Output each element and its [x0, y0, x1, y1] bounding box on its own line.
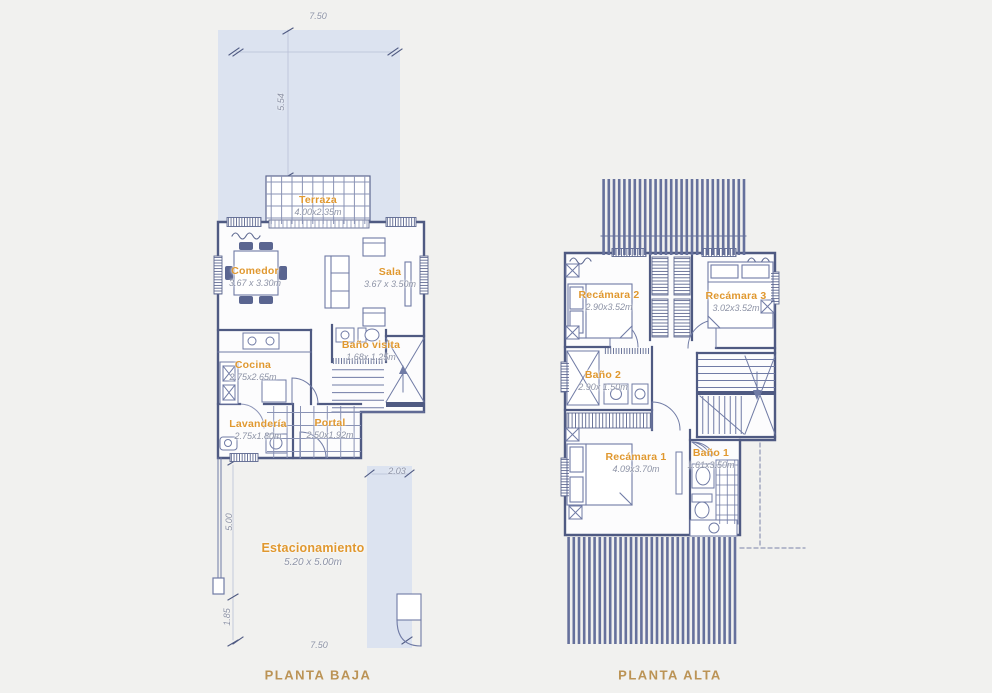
dim-lot-width-top: 7.50	[309, 11, 327, 21]
dim-setback: 1.85	[222, 608, 232, 626]
driveway-strip	[367, 466, 412, 648]
floorplan-canvas: 7.50 5.54 Terraza 4.00x2.35m Comedor 3.6…	[0, 0, 992, 693]
fence-line	[213, 458, 224, 594]
dining-set	[225, 242, 287, 304]
plan-drawing	[0, 0, 992, 693]
bed-recamara1	[567, 444, 632, 505]
bed-recamara3	[708, 262, 773, 328]
dim-lot-width-bottom: 7.50	[310, 640, 328, 650]
dim-yard-depth: 5.54	[276, 93, 286, 111]
dim-parking-depth: 5.00	[224, 513, 234, 531]
planta-alta-drawing	[561, 236, 805, 548]
plan-title-baja: PLANTA BAJA	[265, 668, 372, 683]
guest-bath-fixtures	[336, 328, 379, 342]
tv-console	[676, 452, 682, 494]
planta-baja-drawing	[213, 28, 428, 648]
dim-driveway-width: 2.03	[388, 466, 406, 476]
projection-dashed-lines	[740, 443, 805, 548]
plan-title-alta: PLANTA ALTA	[618, 668, 722, 683]
